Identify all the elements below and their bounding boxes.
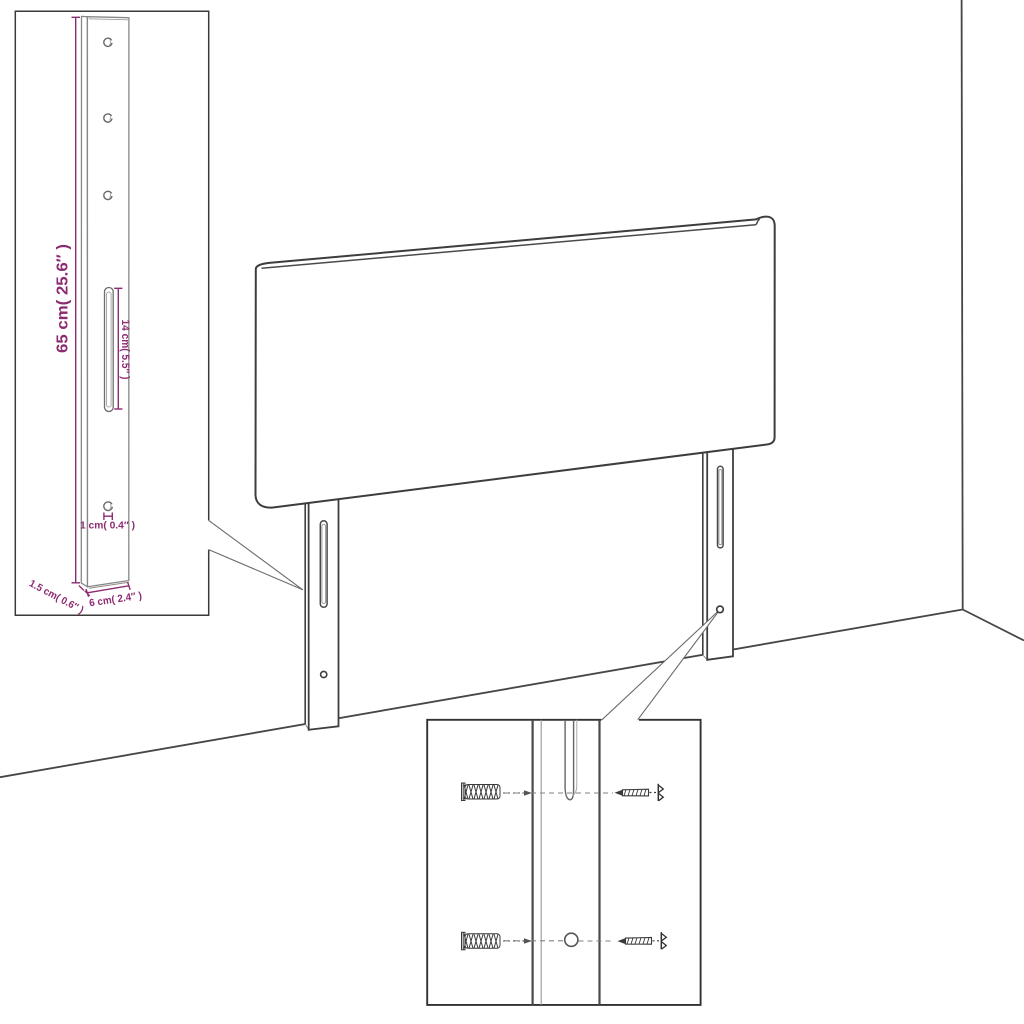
- svg-text:1 cm( 0.4″ ): 1 cm( 0.4″ ): [80, 521, 135, 532]
- svg-text:14 cm( 5.5″ ): 14 cm( 5.5″ ): [119, 320, 131, 380]
- svg-text:65 cm( 25.6″ ): 65 cm( 25.6″ ): [55, 244, 72, 353]
